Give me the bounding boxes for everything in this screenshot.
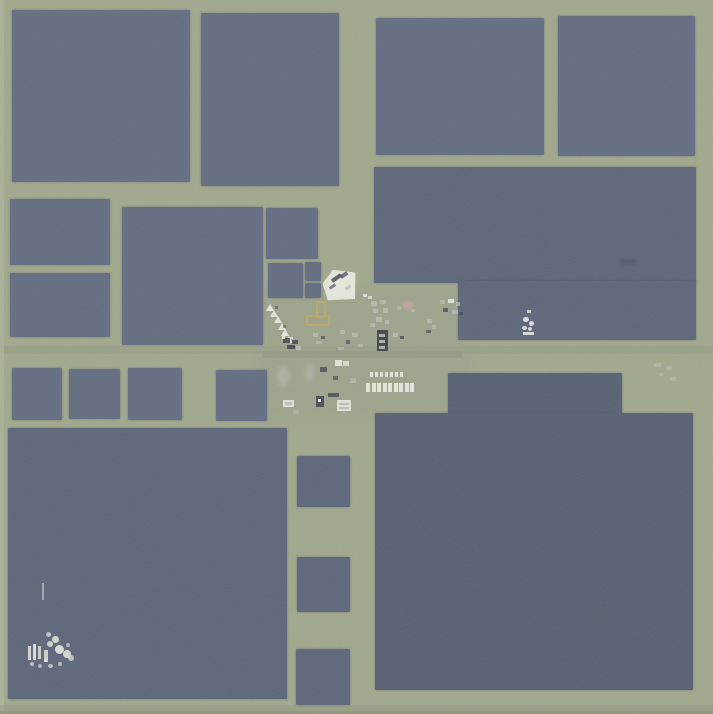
map-sprite xyxy=(275,306,278,309)
field-21[interactable] xyxy=(448,373,622,415)
map-sprite xyxy=(371,301,377,306)
map-sprite xyxy=(42,583,44,600)
map-sprite xyxy=(293,410,299,414)
map-sprite xyxy=(456,302,460,306)
field-22[interactable] xyxy=(375,413,693,690)
map-sprite xyxy=(282,336,285,339)
farm-decoration xyxy=(28,646,31,660)
map-sprite xyxy=(352,333,358,337)
road-segment xyxy=(0,0,4,714)
field-16[interactable] xyxy=(216,370,267,421)
greenhouse xyxy=(395,372,398,377)
map-sprite xyxy=(400,336,404,339)
map-sprite xyxy=(68,655,74,661)
greenhouse xyxy=(390,372,393,377)
greenhouse xyxy=(394,383,398,392)
field-20[interactable] xyxy=(296,649,350,705)
greenhouse xyxy=(372,383,376,392)
map-sprite xyxy=(666,366,671,370)
map-sprite xyxy=(522,326,527,330)
map-sprite xyxy=(290,337,293,339)
map-sprite xyxy=(321,336,325,339)
field-19[interactable] xyxy=(297,557,350,612)
road-segment xyxy=(262,351,462,358)
map-sprite xyxy=(339,403,349,405)
greenhouse xyxy=(375,372,378,377)
field-17[interactable] xyxy=(8,428,287,699)
field-12[interactable] xyxy=(305,283,321,298)
map-sprite xyxy=(380,300,386,304)
map-sprite xyxy=(47,641,53,647)
map-sprite xyxy=(379,340,385,343)
map-sprite xyxy=(337,400,351,411)
field-15[interactable] xyxy=(128,368,182,420)
greenhouse xyxy=(388,383,392,392)
map-sprite xyxy=(30,662,34,666)
map-sprite xyxy=(459,312,463,315)
map-sprite xyxy=(48,664,53,668)
map-sprite xyxy=(296,346,301,350)
map-sprite xyxy=(44,659,47,662)
map-sprite xyxy=(339,407,349,409)
map-sprite xyxy=(397,306,401,310)
game-map-overview[interactable] xyxy=(0,0,713,714)
map-sprite xyxy=(659,373,663,376)
map-canvas[interactable] xyxy=(0,0,713,714)
field-18[interactable] xyxy=(297,456,350,507)
farm-decoration xyxy=(33,644,36,660)
map-sprite xyxy=(277,366,290,386)
greenhouse xyxy=(377,383,381,392)
map-sprite xyxy=(670,377,676,381)
map-sprite xyxy=(343,361,349,366)
map-sprite xyxy=(383,308,388,313)
map-sprite xyxy=(316,341,322,344)
greenhouse xyxy=(366,383,370,392)
map-sprite xyxy=(283,325,286,328)
map-sprite xyxy=(363,294,367,297)
field-13[interactable] xyxy=(12,368,62,420)
map-sprite xyxy=(426,330,431,333)
map-sprite xyxy=(443,308,448,312)
field-10[interactable] xyxy=(268,263,303,298)
map-sprite xyxy=(527,310,531,313)
map-sprite xyxy=(285,402,292,405)
field-4[interactable] xyxy=(558,16,695,156)
field-7[interactable] xyxy=(122,207,263,345)
map-sprite xyxy=(320,367,327,372)
greenhouse xyxy=(385,372,388,377)
map-sprite xyxy=(523,332,534,335)
greenhouse xyxy=(405,383,409,392)
fence-enclosure xyxy=(306,315,330,326)
map-sprite xyxy=(318,399,321,402)
map-sprite xyxy=(379,346,385,349)
map-sprite xyxy=(328,393,339,397)
map-sprite xyxy=(52,636,59,643)
greenhouse xyxy=(370,372,373,377)
greenhouse xyxy=(400,372,403,377)
field-14[interactable] xyxy=(69,369,120,419)
map-sprite xyxy=(287,345,295,349)
map-sprite xyxy=(379,334,385,337)
map-sprite xyxy=(350,378,356,383)
map-sprite xyxy=(338,347,344,350)
map-sprite xyxy=(333,376,338,380)
field-3[interactable] xyxy=(376,18,544,155)
map-sprite xyxy=(528,327,532,331)
field-9[interactable] xyxy=(10,273,110,337)
field-5a[interactable] xyxy=(374,167,696,283)
map-sprite xyxy=(368,296,372,299)
map-sprite xyxy=(46,632,51,637)
map-sprite xyxy=(38,664,42,668)
farm-decoration xyxy=(38,646,41,659)
map-sprite xyxy=(385,320,389,324)
greenhouse xyxy=(380,372,383,377)
map-sprite xyxy=(432,325,436,329)
field-8[interactable] xyxy=(266,208,318,259)
map-sprite xyxy=(370,323,375,327)
field-11[interactable] xyxy=(305,262,321,281)
map-sprite xyxy=(427,319,432,323)
map-sprite xyxy=(654,363,661,367)
map-sprite xyxy=(411,309,415,312)
greenhouse xyxy=(410,383,414,392)
map-sprite xyxy=(529,321,534,326)
map-sprite xyxy=(376,317,382,322)
field-1[interactable] xyxy=(12,10,190,182)
map-sprite xyxy=(448,299,454,303)
map-sprite xyxy=(393,333,398,337)
map-sprite xyxy=(523,317,529,322)
greenhouse xyxy=(399,383,403,392)
field-2[interactable] xyxy=(201,13,339,186)
map-sprite xyxy=(620,259,636,264)
map-sprite xyxy=(313,333,318,337)
map-sprite xyxy=(335,360,342,366)
map-sprite xyxy=(373,309,378,313)
map-sprite xyxy=(305,364,315,382)
map-sprite xyxy=(58,662,62,666)
map-sprite xyxy=(358,344,363,347)
field-5b[interactable] xyxy=(458,281,696,340)
map-sprite xyxy=(66,643,70,647)
map-sprite xyxy=(292,340,298,344)
map-sprite xyxy=(440,300,445,304)
map-sprite xyxy=(452,310,458,314)
map-sprite xyxy=(340,330,345,334)
field-6[interactable] xyxy=(10,199,110,265)
map-sprite xyxy=(346,340,350,344)
greenhouse xyxy=(383,383,387,392)
